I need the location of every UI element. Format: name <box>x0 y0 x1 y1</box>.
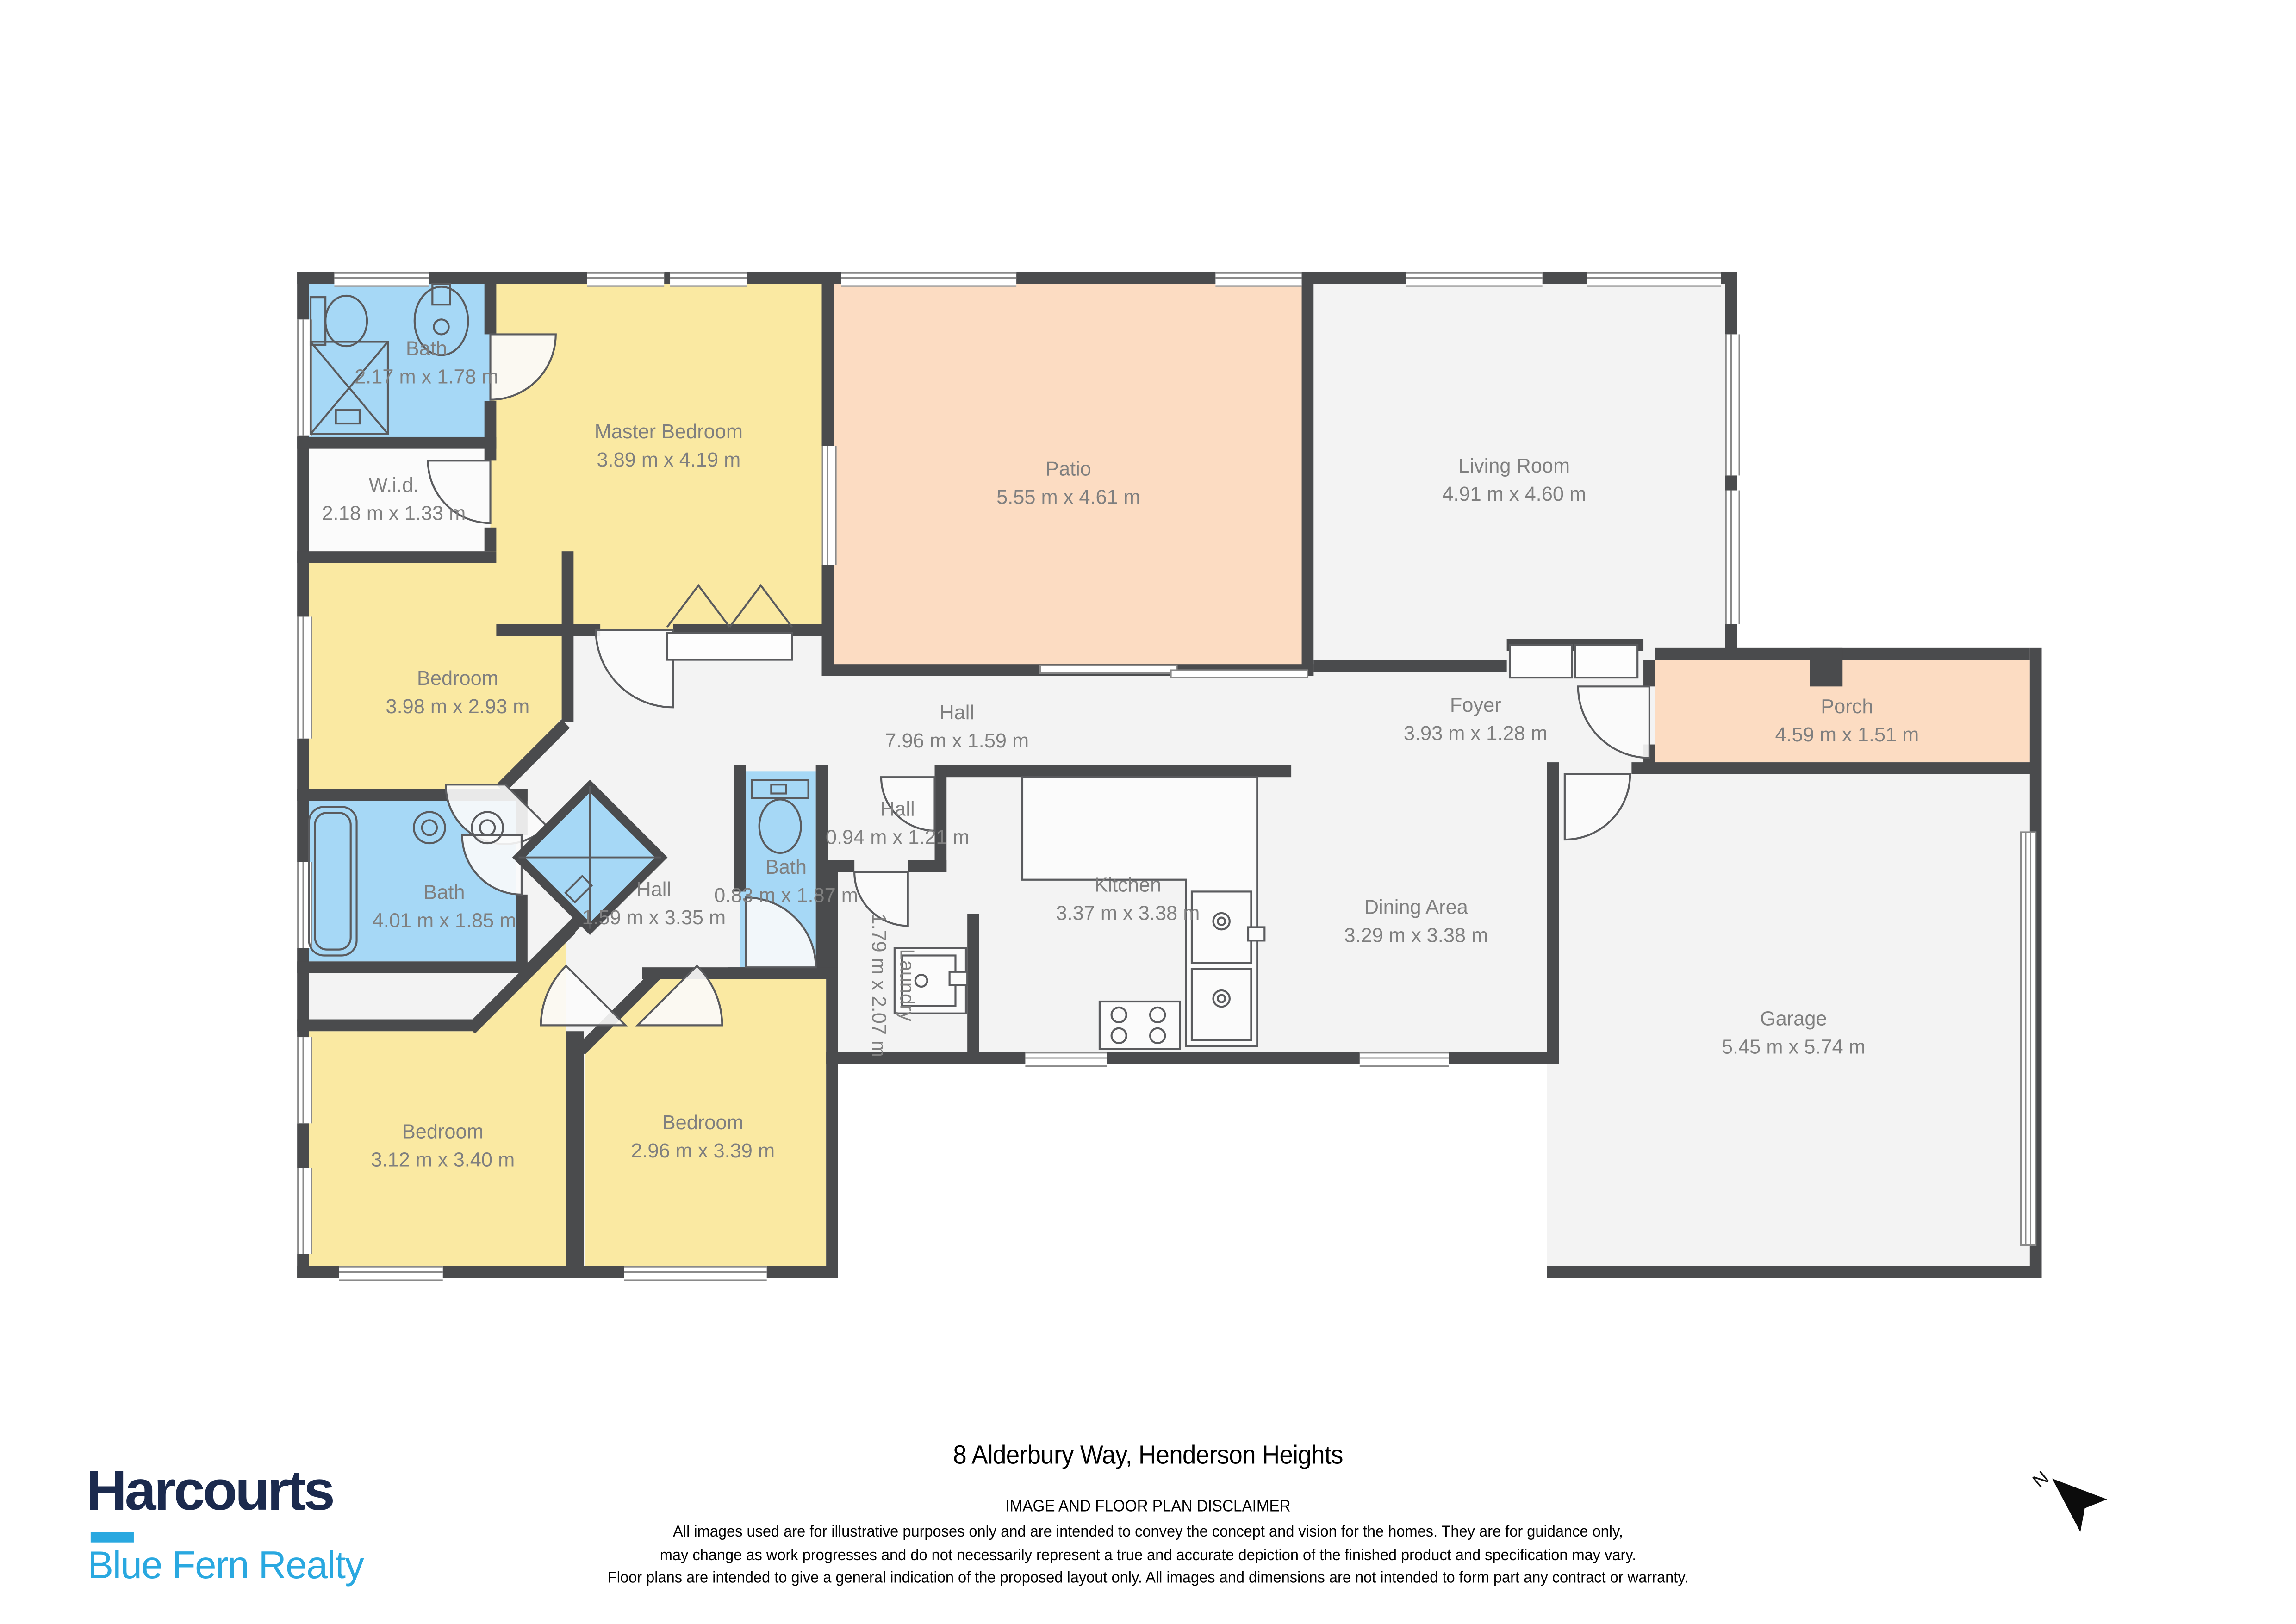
exterior-notch-bottom-center <box>838 1064 1547 1272</box>
room-label-bedroom-bottom-left: Bedroom3.12 m x 3.40 m <box>371 1117 515 1174</box>
disclaimer: IMAGE AND FLOOR PLAN DISCLAIMER All imag… <box>69 1498 2227 1591</box>
room-label-wid: W.i.d.2.18 m x 1.33 m <box>322 471 466 528</box>
agency-logo-tagline: Blue Fern Realty <box>87 1543 363 1589</box>
disclaimer-line: may change as work progresses and do not… <box>69 1545 2227 1568</box>
room-label-hall-diagonal: Hall1.59 m x 3.35 m <box>582 875 726 932</box>
room-label-garage: Garage5.45 m x 5.74 m <box>1722 1004 1866 1061</box>
porch-pillar <box>1810 648 1843 686</box>
room-label-bedroom-mid-left: Bedroom3.98 m x 2.93 m <box>386 664 530 721</box>
agency-logo-bar <box>91 1532 134 1542</box>
room-label-bedroom-bottom-mid: Bedroom2.96 m x 3.39 m <box>631 1108 775 1165</box>
room-label-living-room: Living Room4.91 m x 4.60 m <box>1442 452 1586 508</box>
room-label-master-bedroom: Master Bedroom3.89 m x 4.19 m <box>595 417 743 474</box>
floor-plan-page: N Bath2.17 m x 1.78 m W.i.d.2.18 m x 1.3… <box>0 0 2296 1624</box>
room-label-bath-small: Bath0.83 m x 1.87 m <box>714 853 858 909</box>
room-label-bath-ensuite: Bath2.17 m x 1.78 m <box>355 334 498 391</box>
agency-logo-name: Harcourts <box>86 1462 333 1521</box>
disclaimer-line: Floor plans are intended to give a gener… <box>69 1568 2227 1591</box>
room-label-laundry: Laundry1.79 m x 2.07 m <box>865 913 921 1057</box>
disclaimer-title: IMAGE AND FLOOR PLAN DISCLAIMER <box>69 1498 2227 1516</box>
address-title: 8 Alderbury Way, Henderson Heights <box>69 1440 2227 1471</box>
room-label-porch: Porch4.59 m x 1.51 m <box>1775 692 1919 749</box>
room-label-foyer: Foyer3.93 m x 1.28 m <box>1404 691 1548 747</box>
room-label-patio: Patio5.55 m x 4.61 m <box>996 454 1140 511</box>
disclaimer-line: All images used are for illustrative pur… <box>69 1522 2227 1545</box>
room-label-bath-mid: Bath4.01 m x 1.85 m <box>373 878 516 935</box>
room-label-hall-small: Hall0.94 m x 1.21 m <box>826 795 970 852</box>
agency-logo: Harcourts Blue Fern Realty <box>86 1462 333 1521</box>
room-label-dining-area: Dining Area3.29 m x 3.38 m <box>1344 893 1488 950</box>
room-label-kitchen: Kitchen3.37 m x 3.38 m <box>1056 871 1200 927</box>
room-label-hall-main: Hall7.96 m x 1.59 m <box>885 698 1029 755</box>
exterior-notch-top-right <box>1737 266 2050 648</box>
